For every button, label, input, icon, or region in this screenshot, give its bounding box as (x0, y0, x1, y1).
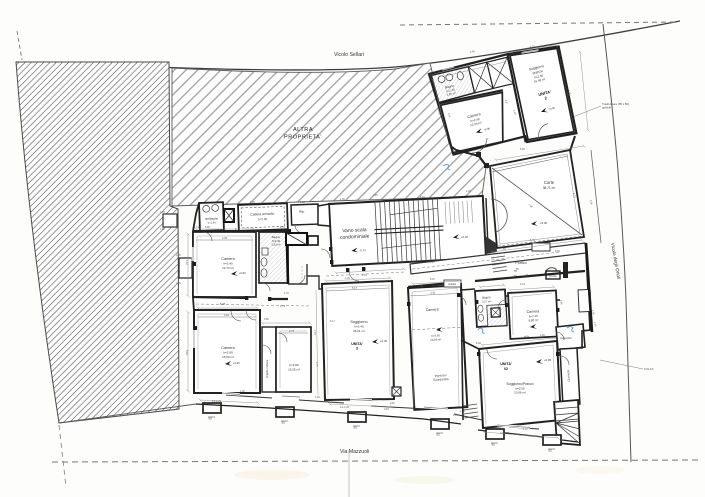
svg-text:26.01 m²: 26.01 m² (353, 329, 365, 333)
svg-text:UNITA': UNITA' (500, 362, 512, 366)
svg-text:02: 02 (504, 367, 508, 371)
svg-text:ALTRA: ALTRA (293, 127, 313, 133)
svg-text:5.98: 5.98 (205, 226, 210, 229)
svg-text:Soggiorno/Pranzo: Soggiorno/Pranzo (506, 382, 533, 386)
svg-text:2.73: 2.73 (280, 304, 286, 308)
svg-text:0.91: 0.91 (390, 402, 395, 405)
svg-text:h=2.80: h=2.80 (223, 351, 233, 355)
svg-text:Cabina armadio: Cabina armadio (250, 212, 274, 217)
svg-text:4.84: 4.84 (224, 313, 230, 317)
svg-text:2.73: 2.73 (280, 226, 285, 229)
svg-text:h=2.45: h=2.45 (354, 325, 364, 329)
svg-text:13.73 m²: 13.73 m² (222, 266, 234, 270)
svg-text:1.39: 1.39 (340, 198, 345, 201)
svg-text:5.45: 5.45 (520, 148, 525, 151)
svg-text:4.30: 4.30 (418, 285, 423, 288)
svg-text:Guardaroba: Guardaroba (433, 377, 449, 382)
svg-text:+0.35: +0.35 (380, 339, 388, 343)
svg-text:Camera: Camera (221, 346, 235, 350)
svg-text:1.29: 1.29 (453, 414, 458, 417)
svg-text:4.70: 4.70 (362, 274, 367, 277)
svg-text:Bagno: Bagno (482, 295, 491, 299)
svg-text:4.30: 4.30 (430, 291, 436, 295)
svg-text:Ingresso: Ingresso (560, 336, 572, 341)
svg-text:Cucinotto: Cucinotto (566, 369, 571, 381)
svg-text:Corte: Corte (544, 180, 555, 185)
svg-text:0.96: 0.96 (196, 226, 201, 229)
svg-text:h=2.40: h=2.40 (258, 217, 268, 221)
svg-text:4.39: 4.39 (222, 236, 228, 240)
svg-text:UNITA': UNITA' (351, 342, 363, 346)
svg-text:antibagno: antibagno (205, 216, 219, 220)
svg-text:5.98: 5.98 (220, 302, 226, 306)
svg-text:5.57 m²: 5.57 m² (482, 299, 491, 303)
svg-text:44--1.26: 44--1.26 (340, 406, 350, 409)
svg-text:44--1.29: 44--1.29 (500, 432, 510, 435)
svg-text:Camera: Camera (426, 307, 439, 312)
svg-text:5.23 m²: 5.23 m² (271, 243, 280, 247)
svg-text:38.71 m²: 38.71 m² (543, 186, 556, 190)
svg-text:Soggiorno: Soggiorno (350, 320, 367, 324)
svg-text:Portico: Portico (515, 261, 526, 265)
svg-text:1.05: 1.05 (160, 211, 165, 214)
svg-text:+0.00: +0.00 (540, 221, 548, 225)
svg-text:23.66 m²: 23.66 m² (514, 391, 525, 395)
svg-text:4.70: 4.70 (284, 292, 289, 295)
svg-text:Bagno: Bagno (272, 235, 281, 239)
svg-text:-0.75: -0.75 (359, 248, 366, 252)
svg-text:h=2.80: h=2.80 (289, 363, 299, 367)
svg-text:5.17: 5.17 (330, 320, 335, 323)
svg-text:4.10: 4.10 (185, 260, 188, 265)
svg-text:3.03: 3.03 (555, 250, 560, 253)
svg-text:1.00: 1.00 (250, 201, 255, 204)
svg-text:h=2.40: h=2.40 (223, 262, 233, 266)
svg-text:44--1.29: 44--1.29 (212, 400, 222, 403)
svg-text:h=2.40: h=2.40 (272, 239, 281, 243)
svg-text:+0.05: +0.05 (544, 358, 552, 362)
svg-text:Angolo cottura: Angolo cottura (265, 360, 269, 378)
svg-text:2.45: 2.45 (373, 194, 378, 197)
svg-text:5.07: 5.07 (430, 278, 435, 281)
svg-text:15.05 m²: 15.05 m² (288, 368, 300, 372)
svg-text:Camera: Camera (221, 257, 235, 261)
svg-text:5.46: 5.46 (185, 350, 188, 355)
svg-text:h=6.10: h=6.10 (644, 367, 654, 371)
svg-text:5.45: 5.45 (420, 196, 425, 199)
svg-text:1.39: 1.39 (300, 201, 305, 204)
svg-text:2.34: 2.34 (520, 283, 525, 286)
svg-text:1.90: 1.90 (176, 282, 181, 285)
svg-text:Rip.: Rip. (299, 210, 305, 214)
svg-text:+0.35: +0.35 (233, 361, 240, 365)
svg-text:5.07: 5.07 (430, 261, 435, 264)
svg-text:3: 3 (356, 347, 358, 351)
svg-text:23.66 m²: 23.66 m² (430, 337, 441, 342)
svg-text:1.90: 1.90 (160, 228, 165, 231)
svg-text:+0.90: +0.90 (239, 271, 246, 275)
svg-text:Via Mazzuoli: Via Mazzuoli (340, 449, 369, 455)
svg-text:0.91: 0.91 (384, 408, 389, 411)
svg-text:1.26: 1.26 (315, 396, 320, 399)
svg-text:apribile: apribile (602, 106, 611, 110)
svg-text:15.60 m²: 15.60 m² (222, 355, 234, 359)
svg-text:8.32: 8.32 (476, 342, 481, 345)
svg-text:1.26: 1.26 (466, 190, 471, 193)
svg-text:PROPRIETA': PROPRIETA' (284, 135, 322, 141)
svg-text:h=2.40: h=2.40 (208, 220, 217, 224)
svg-text:Vicolo Sellari: Vicolo Sellari (334, 52, 364, 58)
svg-text:1.26: 1.26 (345, 277, 350, 280)
svg-text:1.26: 1.26 (540, 334, 545, 337)
svg-text:+6.00: +6.00 (461, 235, 469, 239)
svg-text:9.80 m²: 9.80 m² (528, 318, 538, 323)
svg-text:0.96: 0.96 (264, 318, 269, 321)
svg-text:1.05: 1.05 (176, 254, 181, 257)
svg-text:1.06: 1.06 (240, 390, 245, 393)
svg-text:veletta: veletta (448, 282, 456, 286)
